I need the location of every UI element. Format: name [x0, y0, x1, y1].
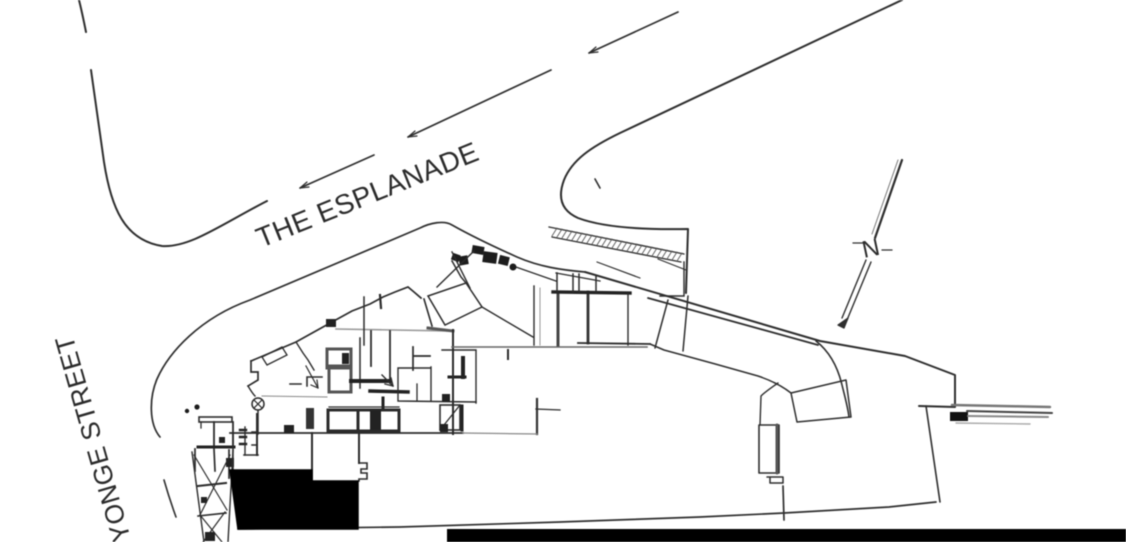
svg-text:YONGE STREET: YONGE STREET [49, 332, 137, 542]
svg-text:THE ESPLANADE: THE ESPLANADE [252, 136, 483, 254]
svg-text:N: N [860, 234, 883, 264]
